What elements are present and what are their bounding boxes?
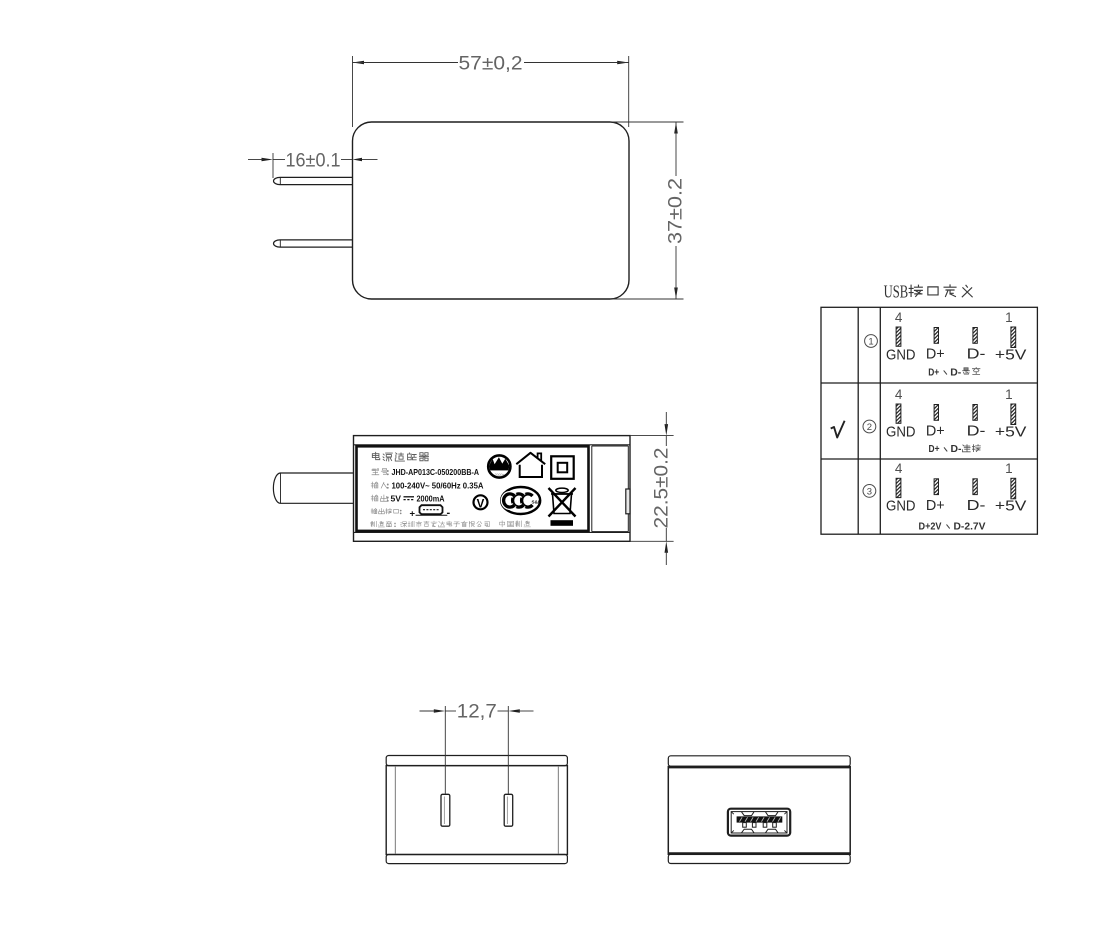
svg-text:-: - bbox=[447, 507, 451, 519]
svg-text:2: 2 bbox=[867, 422, 872, 433]
svg-text:D+: D+ bbox=[926, 346, 945, 363]
svg-text:5V: 5V bbox=[391, 494, 402, 504]
svg-text:12,7: 12,7 bbox=[457, 701, 497, 723]
svg-text:57±0,2: 57±0,2 bbox=[459, 53, 523, 75]
svg-text:2000mA: 2000mA bbox=[417, 494, 445, 504]
svg-text:+5V: +5V bbox=[995, 498, 1027, 515]
svg-text:D-: D- bbox=[967, 497, 986, 514]
svg-text:D+: D+ bbox=[929, 443, 940, 455]
svg-text:100-240V~ 50/60Hz 0.35A: 100-240V~ 50/60Hz 0.35A bbox=[392, 481, 484, 491]
svg-text:22.5±0.2: 22.5±0.2 bbox=[651, 448, 673, 529]
svg-text:GND: GND bbox=[886, 423, 916, 440]
svg-text:JHD-AP013C-050200BB-A: JHD-AP013C-050200BB-A bbox=[392, 467, 480, 477]
svg-text:1: 1 bbox=[868, 336, 873, 347]
svg-text:D-: D- bbox=[967, 423, 986, 440]
svg-text:D-: D- bbox=[950, 366, 961, 378]
svg-text:+: + bbox=[410, 508, 416, 519]
svg-text:D-: D- bbox=[967, 346, 986, 363]
svg-text:1: 1 bbox=[1005, 387, 1013, 402]
svg-text:4: 4 bbox=[895, 461, 903, 476]
svg-text:USB: USB bbox=[884, 282, 909, 302]
svg-text:D+: D+ bbox=[928, 366, 939, 378]
svg-text:+5V: +5V bbox=[995, 423, 1027, 440]
svg-text:+5V: +5V bbox=[995, 346, 1027, 363]
svg-text:1: 1 bbox=[1005, 310, 1013, 325]
svg-text:37±0.2: 37±0.2 bbox=[665, 178, 687, 244]
svg-text:D+: D+ bbox=[926, 423, 945, 440]
svg-text:3: 3 bbox=[867, 486, 872, 497]
svg-text:4: 4 bbox=[895, 387, 903, 402]
svg-text:D+: D+ bbox=[926, 497, 945, 514]
svg-text:D-2.7V: D-2.7V bbox=[954, 520, 986, 532]
svg-text:16±0.1: 16±0.1 bbox=[286, 150, 341, 172]
svg-text:D+2V: D+2V bbox=[919, 520, 942, 532]
svg-text:4: 4 bbox=[895, 310, 903, 325]
svg-text:D-: D- bbox=[951, 443, 962, 455]
svg-text:S&E: S&E bbox=[532, 500, 541, 505]
svg-text:V: V bbox=[477, 498, 485, 510]
svg-text:GND: GND bbox=[886, 346, 916, 363]
svg-text:GND: GND bbox=[886, 498, 916, 515]
svg-text:1: 1 bbox=[1005, 461, 1013, 476]
